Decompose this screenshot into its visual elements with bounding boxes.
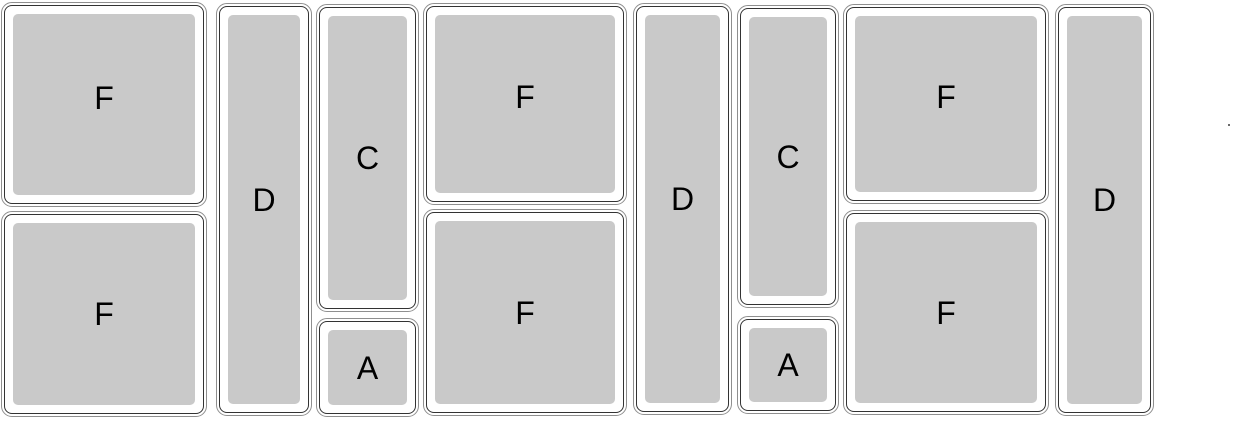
pan-f: F <box>843 210 1049 415</box>
pan-f: F <box>423 3 627 205</box>
pan-tray: F <box>855 222 1037 403</box>
pan-inner-rim: D <box>219 6 309 413</box>
pan-inner-rim: F <box>4 214 204 414</box>
pan-size-label: C <box>776 141 799 173</box>
pan-tray: D <box>228 15 300 404</box>
pan-size-label: F <box>936 297 956 329</box>
pan-size-label: D <box>252 184 275 216</box>
pan-c: C <box>737 5 839 308</box>
pan-inner-rim: F <box>846 7 1046 201</box>
pan-inner-rim: A <box>319 321 416 414</box>
pan-f: F <box>423 209 627 416</box>
pan-inner-rim: F <box>846 213 1046 412</box>
pan-c: C <box>316 4 419 312</box>
pan-d: D <box>633 3 732 415</box>
pan-a: A <box>316 318 419 417</box>
pan-a: A <box>737 316 839 414</box>
pan-tray: C <box>749 17 827 296</box>
pan-tray: F <box>435 15 615 193</box>
pan-inner-rim: C <box>740 8 836 305</box>
pan-tray: F <box>855 16 1037 192</box>
pan-tray: F <box>13 14 195 195</box>
pan-size-label: D <box>671 183 694 215</box>
pan-size-label: F <box>515 81 535 113</box>
pan-inner-rim: D <box>1058 7 1151 413</box>
pan-inner-rim: F <box>4 5 204 204</box>
pan-inner-rim: A <box>740 319 836 411</box>
pan-tray: C <box>328 16 407 300</box>
pan-size-label: C <box>356 142 379 174</box>
pan-tray: A <box>749 328 827 402</box>
pan-d: D <box>1055 4 1154 416</box>
pan-f: F <box>1 2 207 207</box>
pan-size-label: F <box>94 82 114 114</box>
stray-dot <box>1228 124 1230 126</box>
pan-tray: A <box>328 330 407 405</box>
pan-tray: F <box>435 221 615 404</box>
pan-inner-rim: D <box>636 6 729 412</box>
pan-size-label: A <box>777 349 798 381</box>
pan-size-label: F <box>515 297 535 329</box>
pan-inner-rim: F <box>426 6 624 202</box>
pan-size-label: A <box>357 352 378 384</box>
pan-size-label: F <box>94 298 114 330</box>
pan-d: D <box>216 3 312 416</box>
pan-f: F <box>843 4 1049 204</box>
pan-inner-rim: C <box>319 7 416 309</box>
pan-size-label: F <box>936 81 956 113</box>
pan-tray: D <box>645 15 720 403</box>
pan-layout-diagram: F F D C A <box>0 0 1236 422</box>
pan-inner-rim: F <box>426 212 624 413</box>
pan-size-label: D <box>1093 184 1116 216</box>
pan-f: F <box>1 211 207 417</box>
pan-tray: F <box>13 223 195 405</box>
pan-tray: D <box>1067 16 1142 404</box>
